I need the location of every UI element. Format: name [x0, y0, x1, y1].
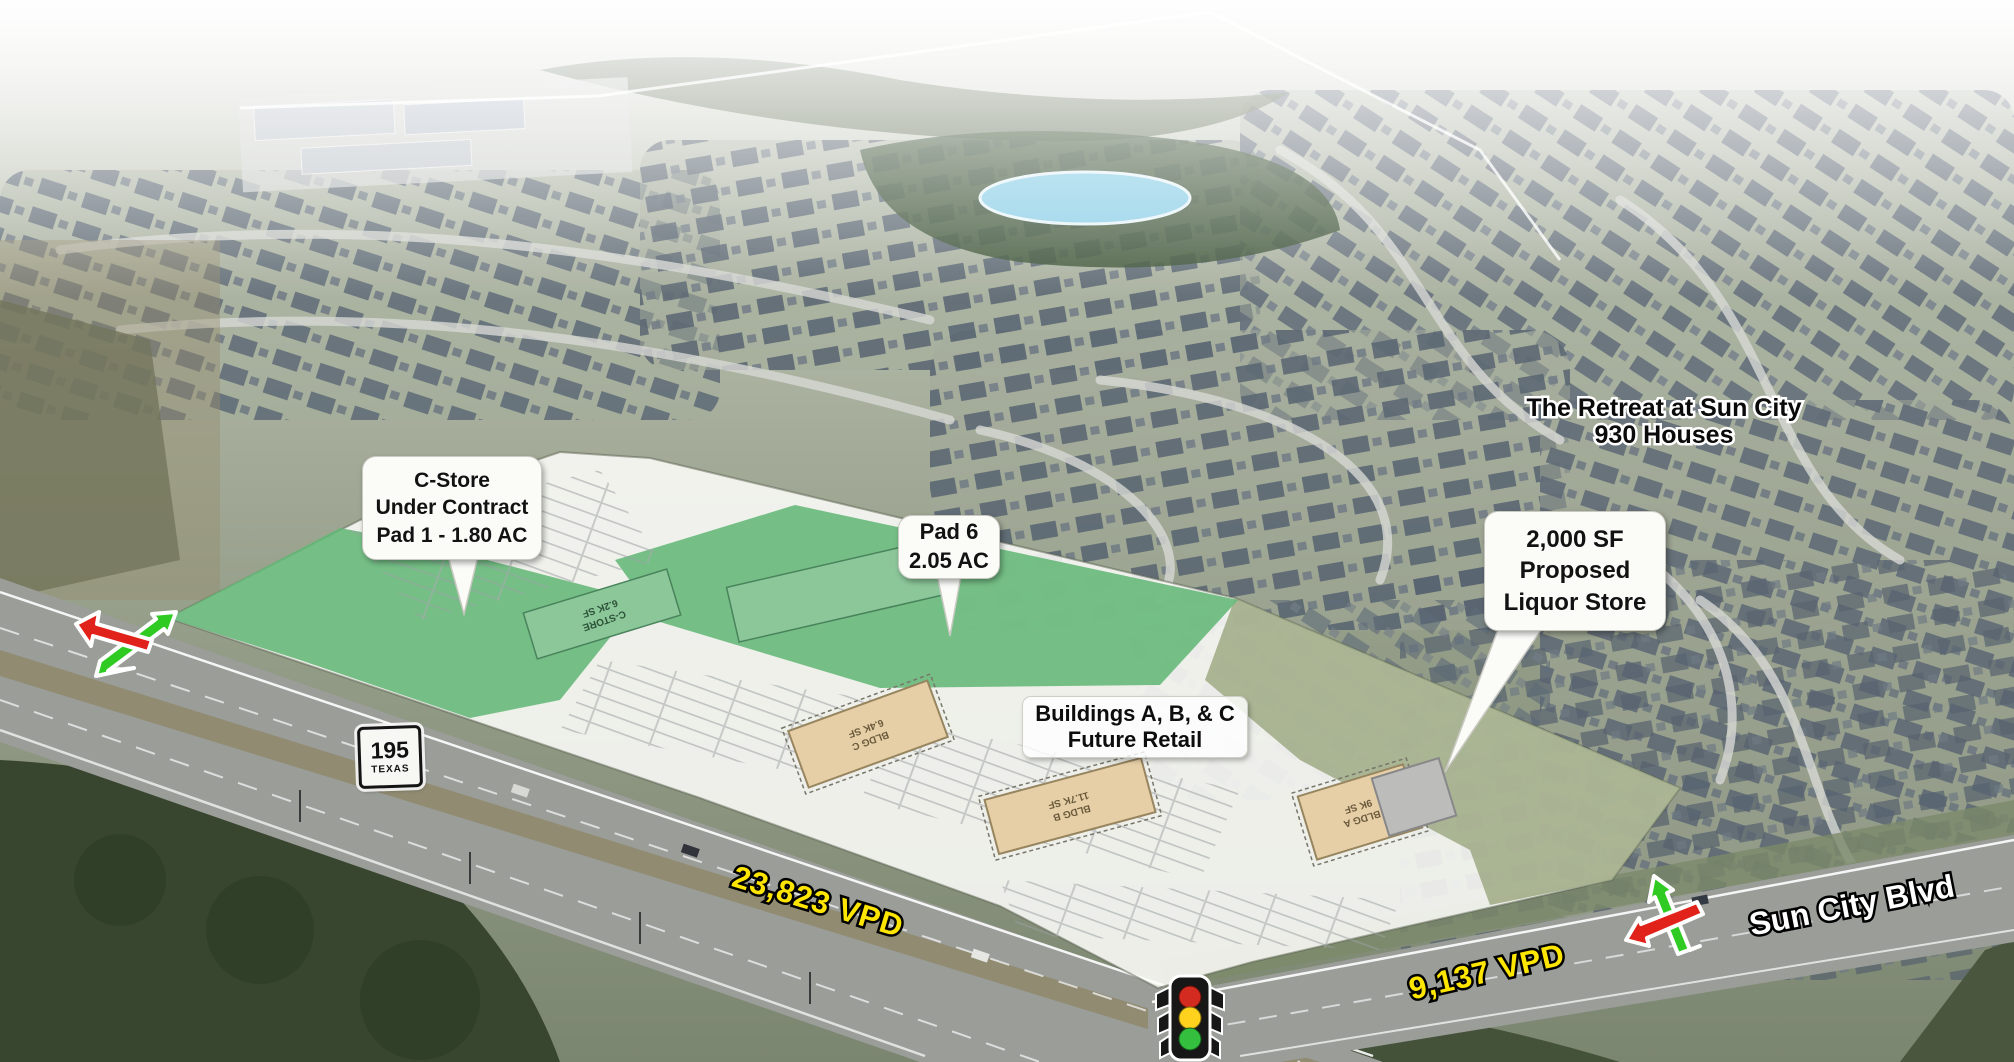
annotation-overlay: 23,823 VPD 9,137 VPD Sun City Blvd The R…	[0, 0, 2014, 1062]
c-store-callout-line1: C-Store	[414, 467, 490, 494]
signal-yellow-light	[1179, 1007, 1201, 1029]
c-store-callout: C-Store Under Contract Pad 1 - 1.80 AC	[362, 456, 542, 560]
buildings-abc-line1: Buildings A, B, & C	[1035, 701, 1235, 727]
shield-route-number: 195	[370, 738, 409, 762]
c-store-callout-tail	[448, 556, 478, 614]
c-store-callout-line2: Under Contract	[376, 494, 529, 521]
buildings-abc-line2: Future Retail	[1068, 727, 1202, 753]
callout-tails	[448, 556, 1545, 772]
retreat-label-line1: The Retreat at Sun City	[1526, 394, 1801, 422]
pad6-callout-line2: 2.05 AC	[909, 547, 989, 576]
shield-state-name: TEXAS	[371, 763, 410, 775]
signal-green-light	[1179, 1028, 1201, 1050]
traffic-light-icon	[1156, 976, 1224, 1060]
highway-vpd-label: 23,823 VPD	[728, 859, 908, 944]
c-store-callout-line3: Pad 1 - 1.80 AC	[377, 522, 528, 549]
liquor-callout-line3: Liquor Store	[1504, 587, 1647, 618]
buildings-abc-label: Buildings A, B, & C Future Retail	[1022, 696, 1248, 758]
signal-red-light	[1179, 986, 1201, 1008]
aerial-site-map: C-STORE 6.2K SF BLDG C 6.4K SF BLDG B 11…	[0, 0, 2014, 1062]
liquor-callout-line2: Proposed	[1520, 555, 1631, 586]
red-green-turn-arrows-right	[1626, 876, 1703, 954]
liquor-store-callout: 2,000 SF Proposed Liquor Store	[1484, 511, 1666, 631]
blvd-name-label: Sun City Blvd	[1746, 868, 1957, 943]
red-green-turn-arrows-left	[76, 612, 176, 676]
blvd-vpd-label: 9,137 VPD	[1406, 937, 1569, 1007]
retreat-label: The Retreat at Sun City 930 Houses	[1526, 394, 1801, 449]
retreat-label-line2: 930 Houses	[1595, 421, 1734, 449]
pad6-callout-line1: Pad 6	[920, 518, 979, 547]
liquor-callout-line1: 2,000 SF	[1526, 524, 1623, 555]
highway-195-shield: 195 TEXAS	[357, 725, 423, 789]
pad6-callout: Pad 6 2.05 AC	[898, 515, 1000, 579]
liquor-callout-tail	[1445, 624, 1545, 772]
pad6-callout-tail	[936, 570, 962, 636]
